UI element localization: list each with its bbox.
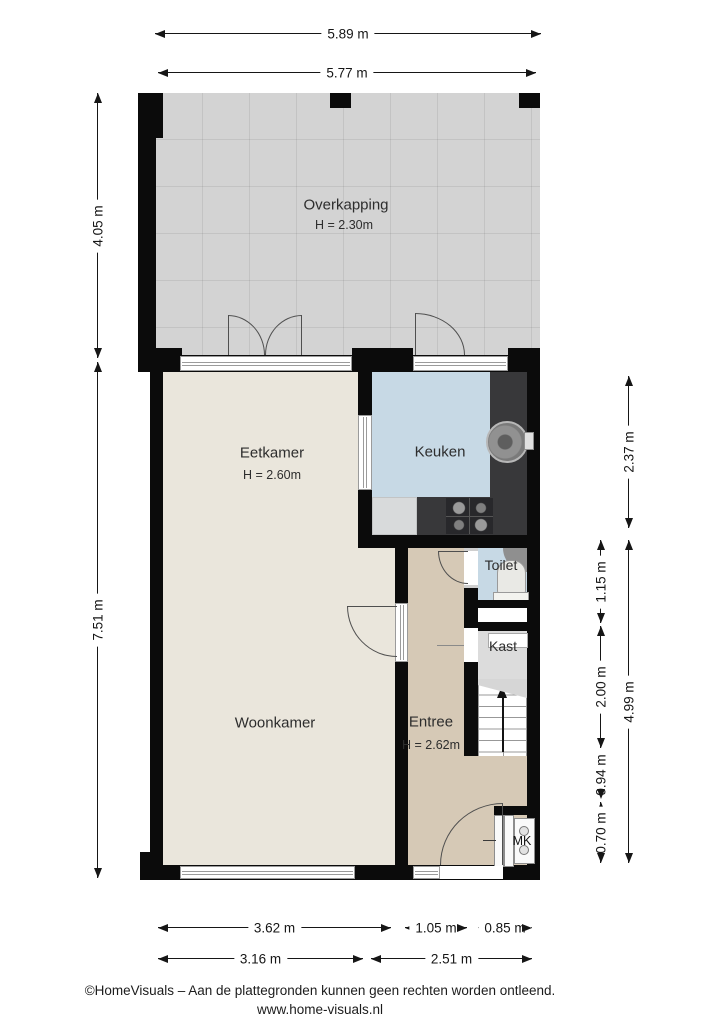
dim-bottom-mk-label: 0.85 m [478,920,531,935]
room-label-mk: MK [513,834,532,848]
dim-right-keuken-label: 2.37 m [621,425,636,478]
floor-plan: Overkapping H = 2.30m Keuken Toilet Kast [0,0,724,1024]
room-height-eetkamer: H = 2.60m [243,468,301,482]
dim-bottom-inner-right: 2.51 m [371,958,532,959]
dim-bottom-inner-right-label: 2.51 m [425,951,478,966]
dim-right-toilet-label: 1.15 m [593,555,608,608]
footer-url: www.home-visuals.nl [0,1002,640,1017]
dim-bottom-woonkamer: 3.62 m [158,927,391,928]
woonkamer-window [180,866,355,879]
dim-bottom-entree-label: 1.05 m [409,920,462,935]
duct-niche [478,608,527,622]
stove-icon [446,498,493,534]
room-height-entree: H = 2.62m [402,738,460,752]
room-label-overkapping: Overkapping [303,197,388,214]
dim-bottom-mk: 0.85 m [478,927,532,928]
dim-bottom-woonkamer-label: 3.62 m [248,920,301,935]
keuken-south-wall [358,535,540,548]
top-wall-block-mid [352,348,413,372]
dim-top-inner-label: 5.77 m [320,65,373,80]
room-height-overkapping: H = 2.30m [315,218,373,232]
dim-right-keuken: 2.37 m [628,376,629,528]
dim-left-house: 7.51 m [97,362,98,878]
dim-right-total-label: 4.99 m [621,675,636,728]
room-label-toilet: Toilet [485,557,518,573]
dim-left-house-label: 7.51 m [90,593,105,646]
kitchen-sink-icon [486,421,528,463]
dim-bottom-inner-left: 3.16 m [158,958,363,959]
dim-right-toilet: 1.15 m [600,540,601,623]
staircase-up-arrow-icon [502,696,504,752]
footer-disclaimer: ©HomeVisuals – Aan de plattegronden kunn… [0,983,640,998]
house-left-wall [150,372,163,880]
eetkamer-doors-glazing [180,356,352,371]
dim-right-hal-label: 0.94 m [593,748,608,801]
kast-door-tick [437,645,464,646]
overkapping-corner-post [138,93,163,138]
dim-right-hal: 0.94 m [600,751,601,799]
dim-left-overkapping: 4.05 m [97,93,98,358]
dim-top-outer: 5.89 m [155,33,541,34]
dim-right-kast-trap: 2.00 m [600,626,601,748]
keuken-cabinet [372,497,417,535]
dim-right-total: 4.99 m [628,540,629,863]
keuken-floor [372,372,490,497]
room-label-woonkamer: Woonkamer [235,715,316,732]
dim-top-outer-label: 5.89 m [321,26,374,41]
room-label-entree: Entree [409,714,453,731]
room-label-eetkamer: Eetkamer [240,445,304,462]
overkapping-right-post [519,93,540,108]
keuken-door-glazing [413,356,508,371]
dim-right-kast-trap-label: 2.00 m [593,660,608,713]
dim-bottom-inner-left-label: 3.16 m [234,951,287,966]
toilet-south-wall [464,600,540,608]
kast-door-gap [464,628,478,662]
dim-right-mk: 0.70 m [600,802,601,863]
overkapping-mid-post [330,93,351,108]
woonkamer-entree-wall [395,548,408,865]
front-door-gap [440,866,503,879]
entree-window [413,866,440,879]
dim-left-overkapping-label: 4.05 m [90,199,105,252]
dim-top-inner: 5.77 m [158,72,536,73]
top-wall-block-left [138,348,182,372]
kitchen-faucet-icon [524,432,534,450]
room-label-keuken: Keuken [415,444,466,461]
dim-bottom-entree: 1.05 m [405,927,467,928]
keuken-passthrough-window [358,415,372,490]
room-label-kast: Kast [489,638,517,654]
dim-right-mk-label: 0.70 m [593,806,608,859]
